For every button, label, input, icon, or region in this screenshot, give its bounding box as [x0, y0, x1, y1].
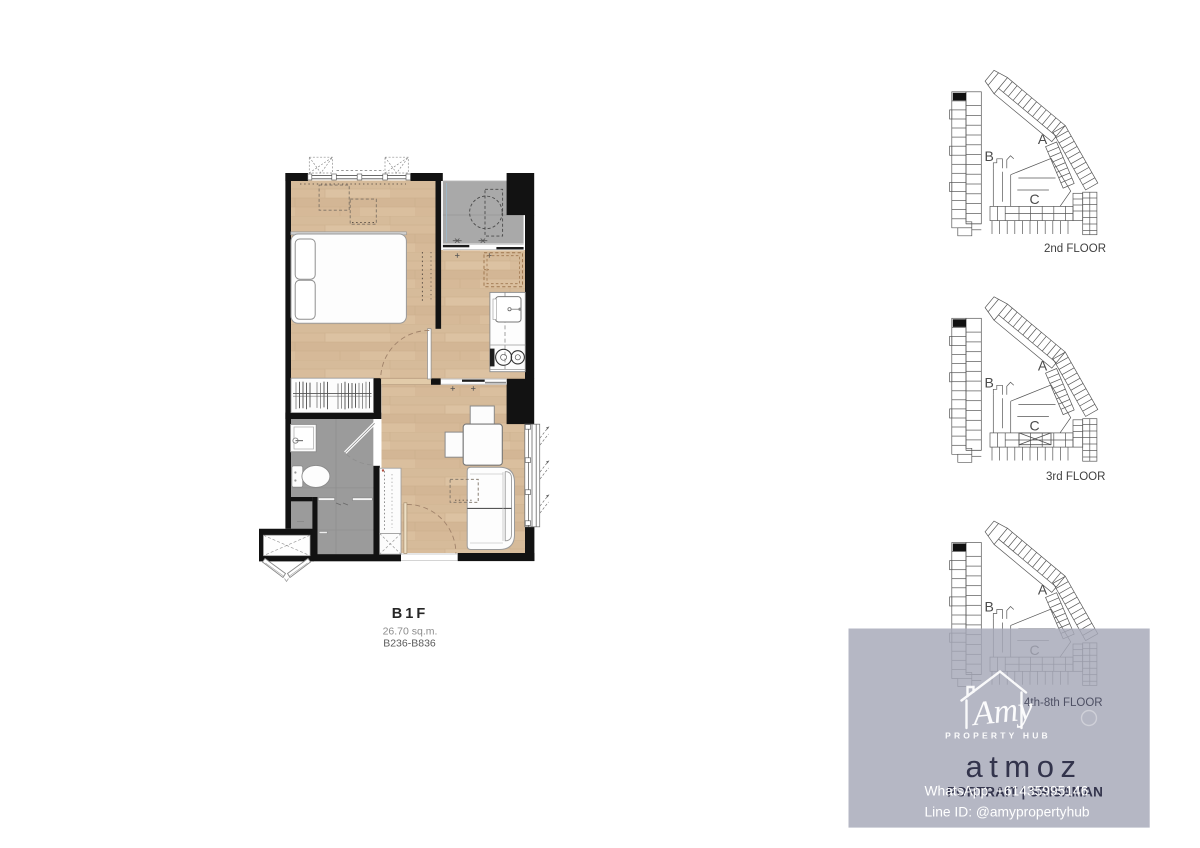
svg-text:Amy: Amy	[969, 690, 1036, 733]
svg-text:WhatsApp: +61435995146: WhatsApp: +61435995146	[925, 784, 1089, 799]
svg-text:A: A	[1038, 582, 1048, 598]
svg-text:atmoz: atmoz	[966, 749, 1083, 784]
svg-text:PROPERTY HUB: PROPERTY HUB	[945, 731, 1051, 741]
svg-text:3rd FLOOR: 3rd FLOOR	[1046, 471, 1105, 483]
svg-text:C: C	[1030, 191, 1040, 207]
svg-text:A: A	[1038, 131, 1048, 147]
svg-text:2nd FLOOR: 2nd FLOOR	[1044, 243, 1106, 255]
svg-text:B: B	[985, 599, 994, 615]
svg-text:B: B	[985, 148, 994, 164]
svg-text:Line ID: @amypropertyhub: Line ID: @amypropertyhub	[925, 805, 1090, 820]
svg-text:B: B	[985, 375, 994, 391]
svg-text:26.70 sq.m.: 26.70 sq.m.	[383, 626, 438, 638]
svg-text:A: A	[1038, 358, 1048, 374]
svg-text:C: C	[1030, 418, 1040, 434]
svg-text:B236-B836: B236-B836	[383, 638, 436, 650]
svg-text:4th-8th FLOOR: 4th-8th FLOOR	[1024, 697, 1103, 709]
svg-text:B1F: B1F	[392, 606, 428, 622]
